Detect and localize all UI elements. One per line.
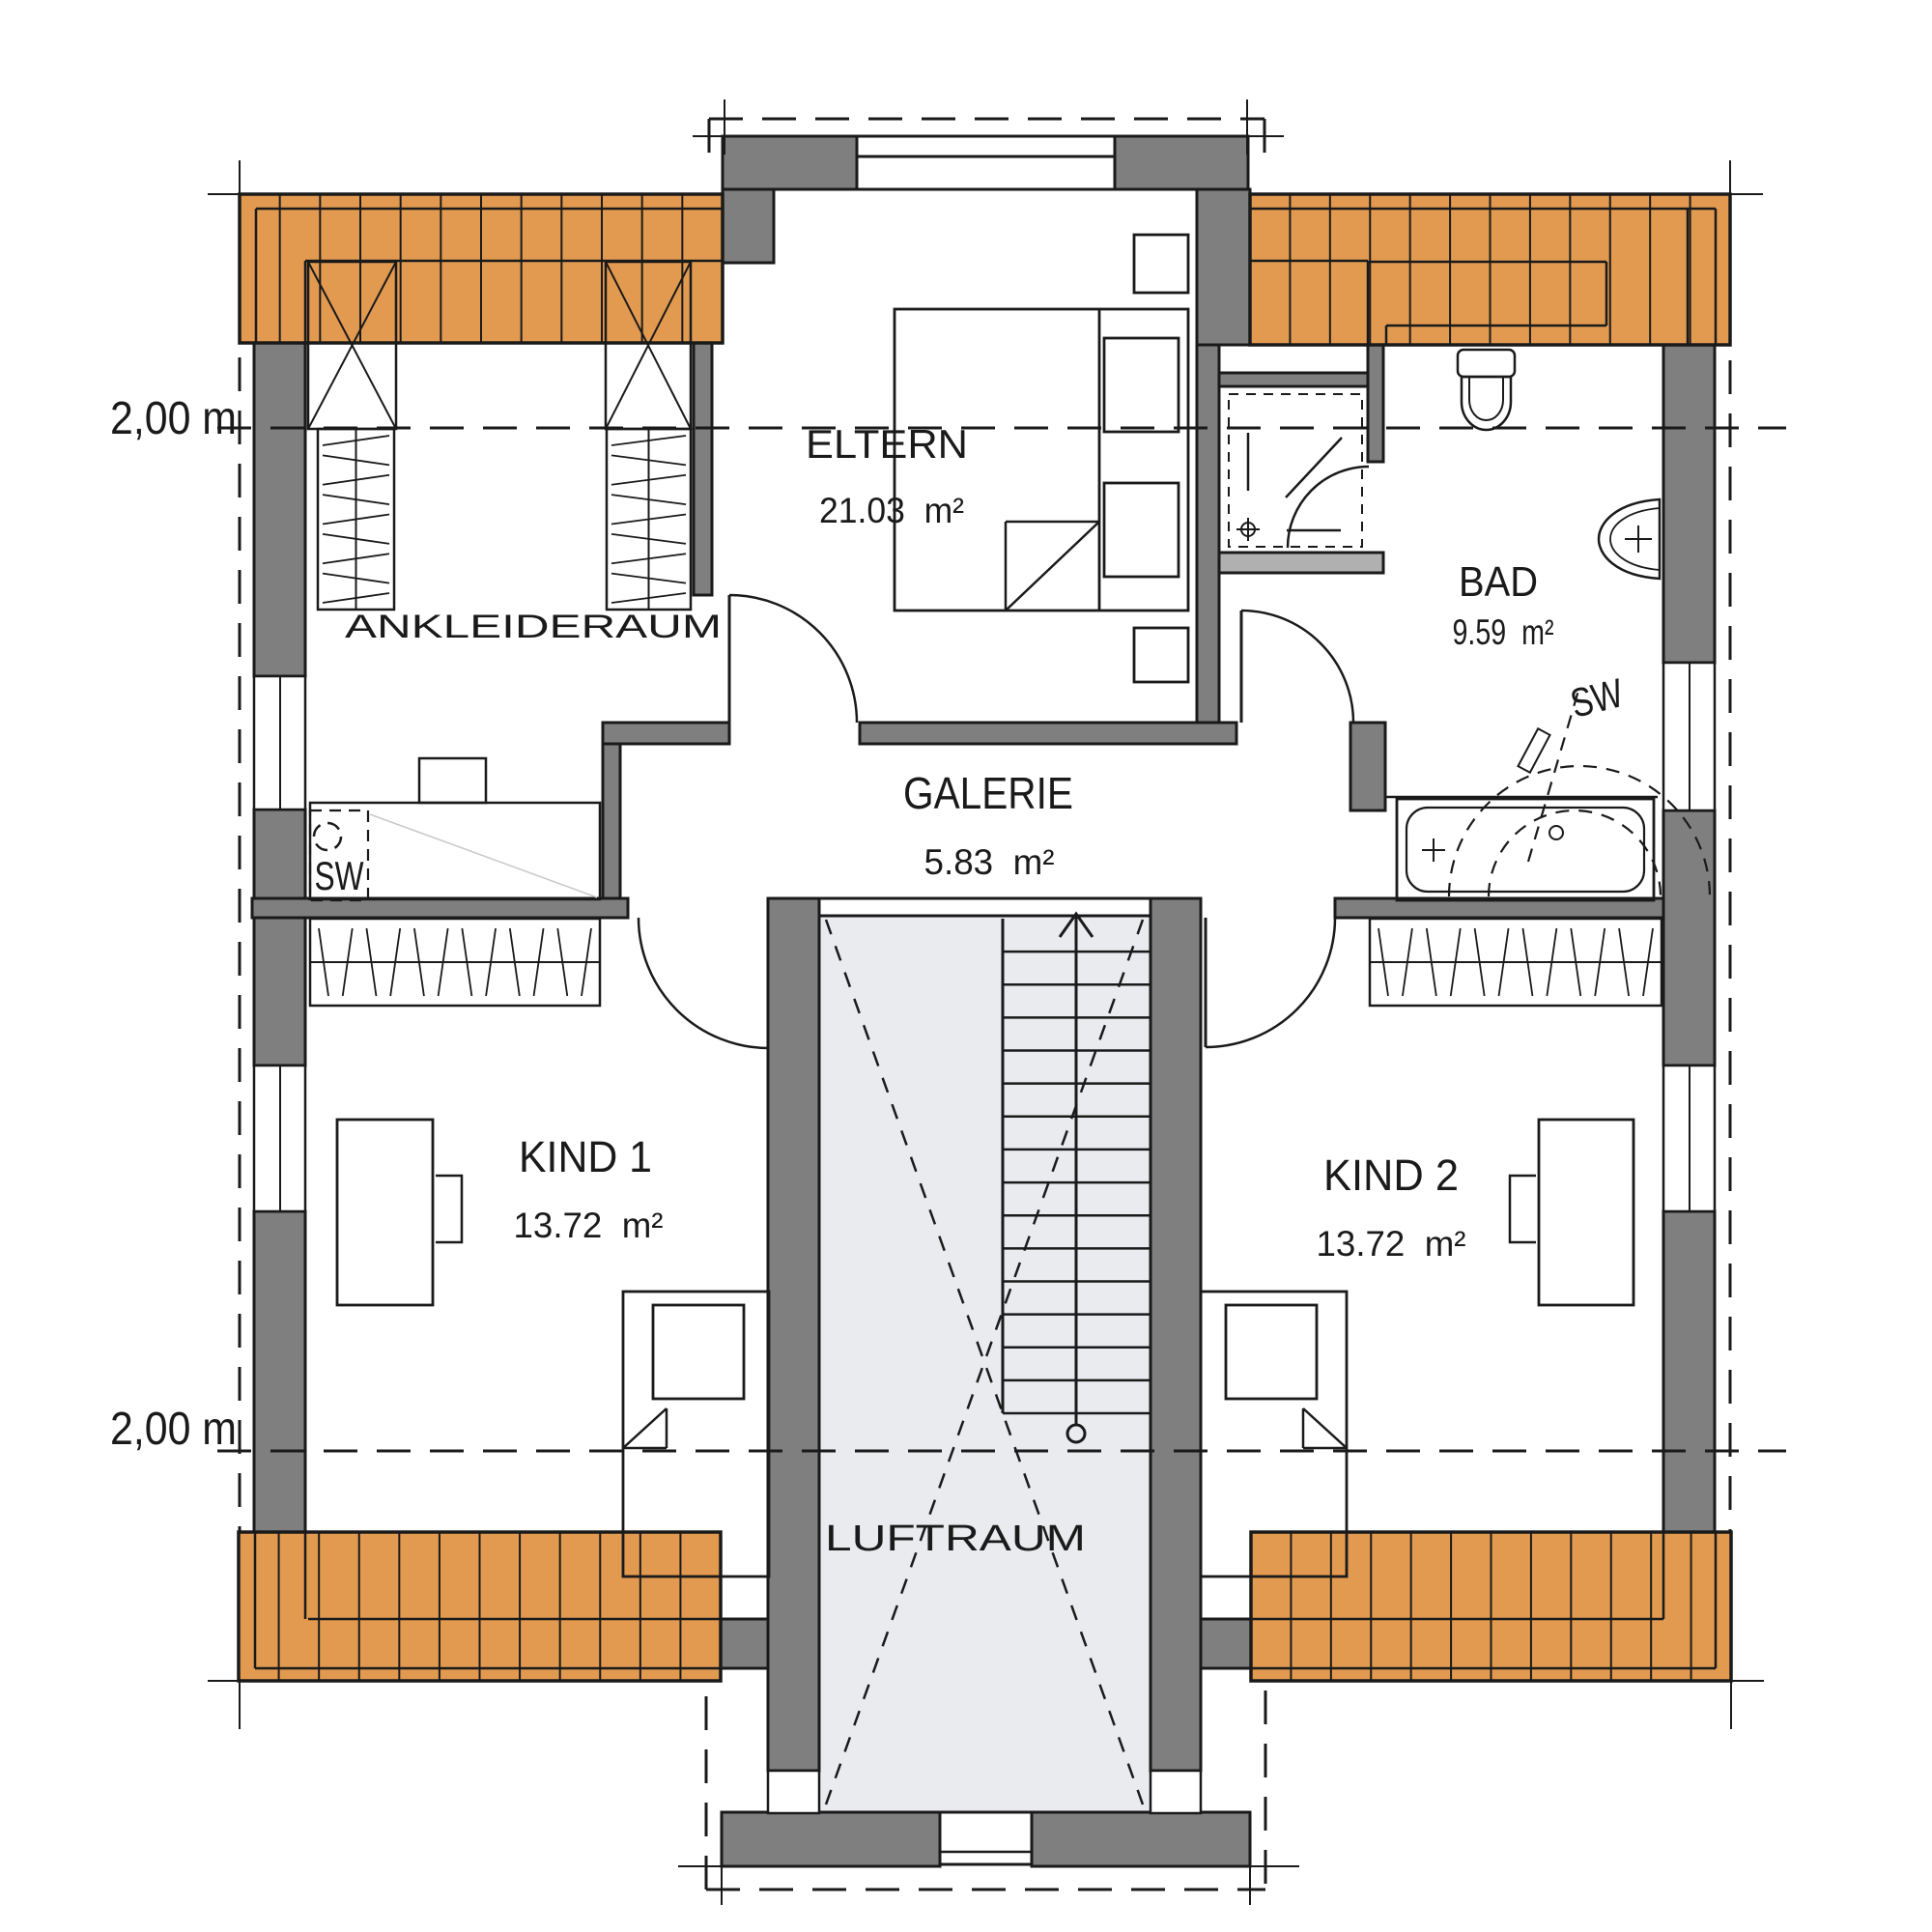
svg-text:5.83 m²: 5.83 m² xyxy=(924,842,1055,882)
svg-text:ELTERN: ELTERN xyxy=(806,421,968,467)
svg-text:SW: SW xyxy=(315,853,364,898)
svg-text:13.72 m²: 13.72 m² xyxy=(514,1206,664,1245)
svg-text:ANKLEIDERAUM: ANKLEIDERAUM xyxy=(345,609,722,645)
svg-text:2,00 m: 2,00 m xyxy=(110,1404,237,1455)
svg-text:BAD: BAD xyxy=(1459,558,1538,606)
svg-text:21.03 m²: 21.03 m² xyxy=(819,491,964,530)
svg-text:KIND 1: KIND 1 xyxy=(519,1132,652,1181)
svg-text:2,00 m: 2,00 m xyxy=(110,393,237,444)
svg-text:9.59 m²: 9.59 m² xyxy=(1453,612,1554,652)
svg-text:LUFTRAUM: LUFTRAUM xyxy=(825,1519,1086,1559)
svg-text:13.72 m²: 13.72 m² xyxy=(1317,1224,1466,1264)
svg-text:KIND 2: KIND 2 xyxy=(1323,1151,1459,1200)
svg-text:GALERIE: GALERIE xyxy=(903,768,1073,818)
